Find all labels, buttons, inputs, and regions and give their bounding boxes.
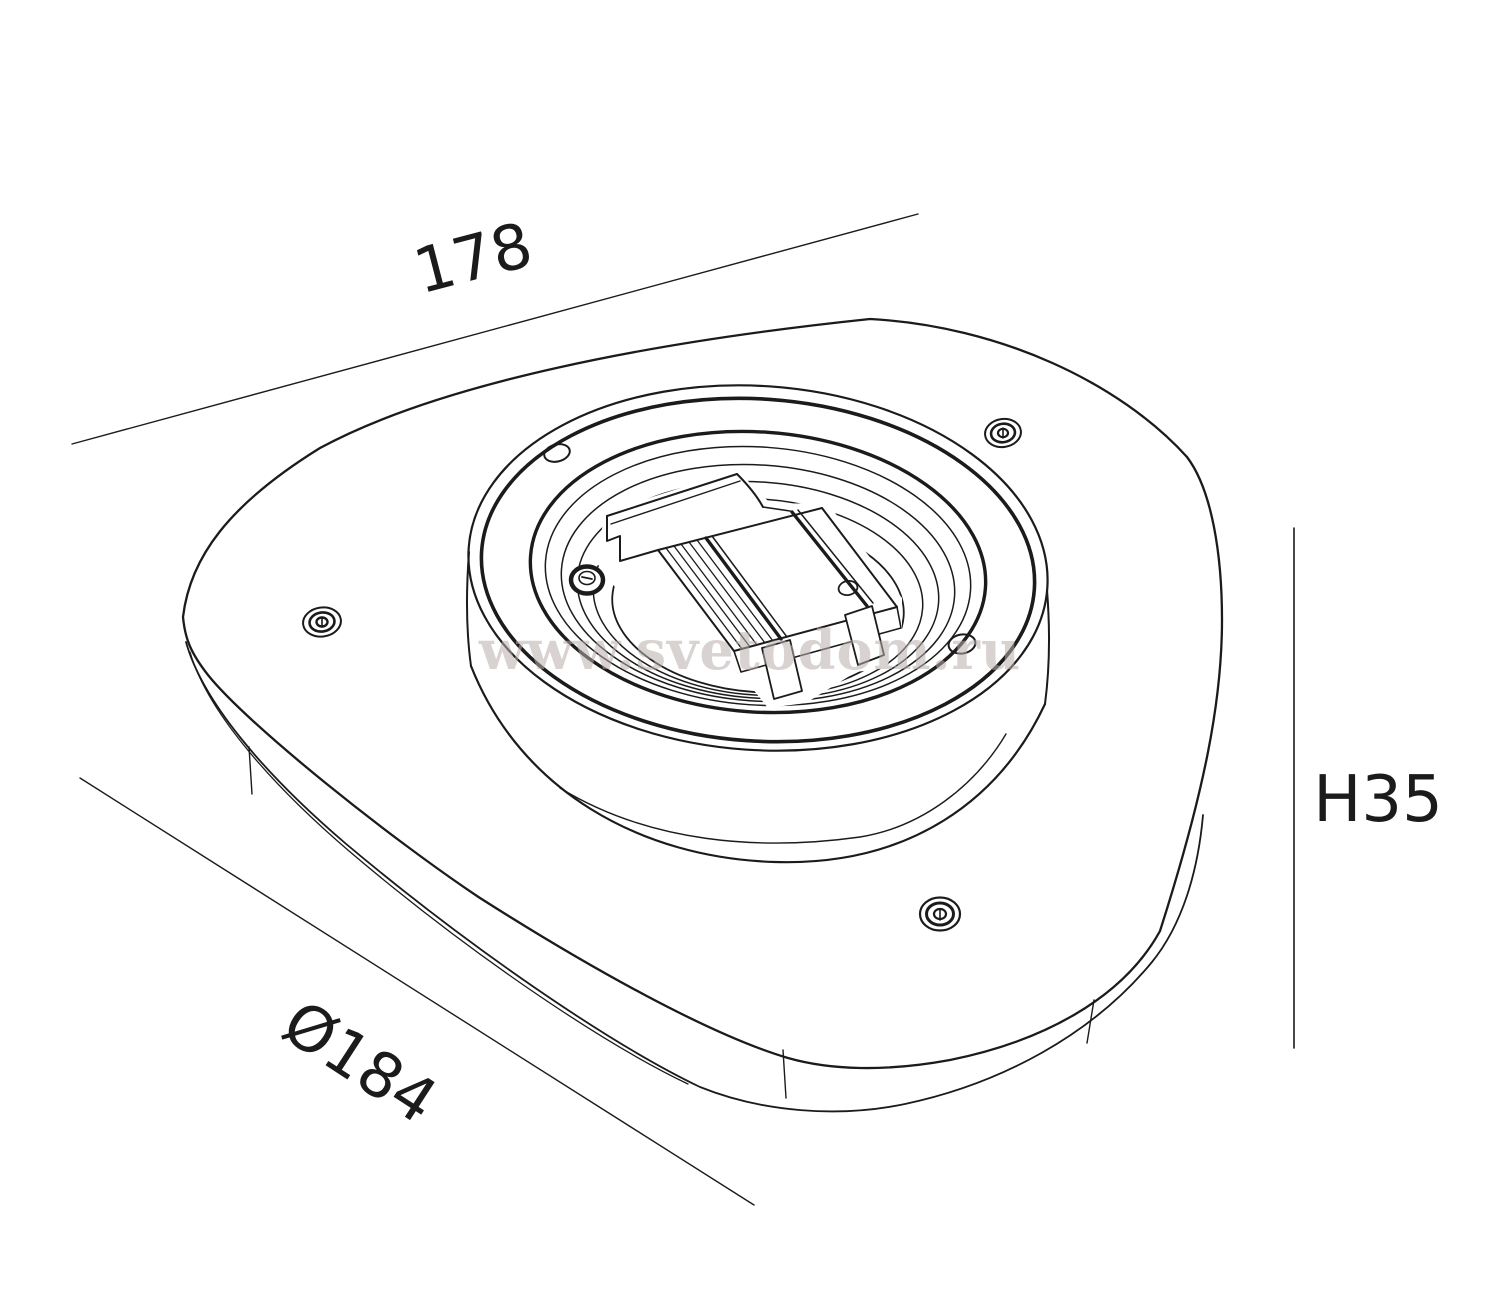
technical-drawing-page: 178 Ø184 H35 www.svetodom.ru [0, 0, 1500, 1291]
bracket-screw [571, 567, 603, 594]
technical-drawing: 178 Ø184 H35 www.svetodom.ru [0, 0, 1500, 1291]
dimension-height: H35 [1294, 528, 1443, 1048]
ring-wall-right-edge [1045, 590, 1049, 704]
screw-bottom [920, 898, 960, 931]
screw-top-right [983, 417, 1023, 450]
dimension-height-label: H35 [1313, 763, 1443, 837]
watermark: www.svetodom.ru [478, 618, 1021, 682]
dimension-diameter-line [80, 778, 754, 1205]
dimension-diameter-label: Ø184 [270, 986, 450, 1138]
screw-left [301, 605, 343, 639]
dimension-diameter: Ø184 [80, 778, 754, 1205]
bracket-screw-rim [571, 567, 603, 594]
dimension-width-label: 178 [407, 208, 540, 308]
